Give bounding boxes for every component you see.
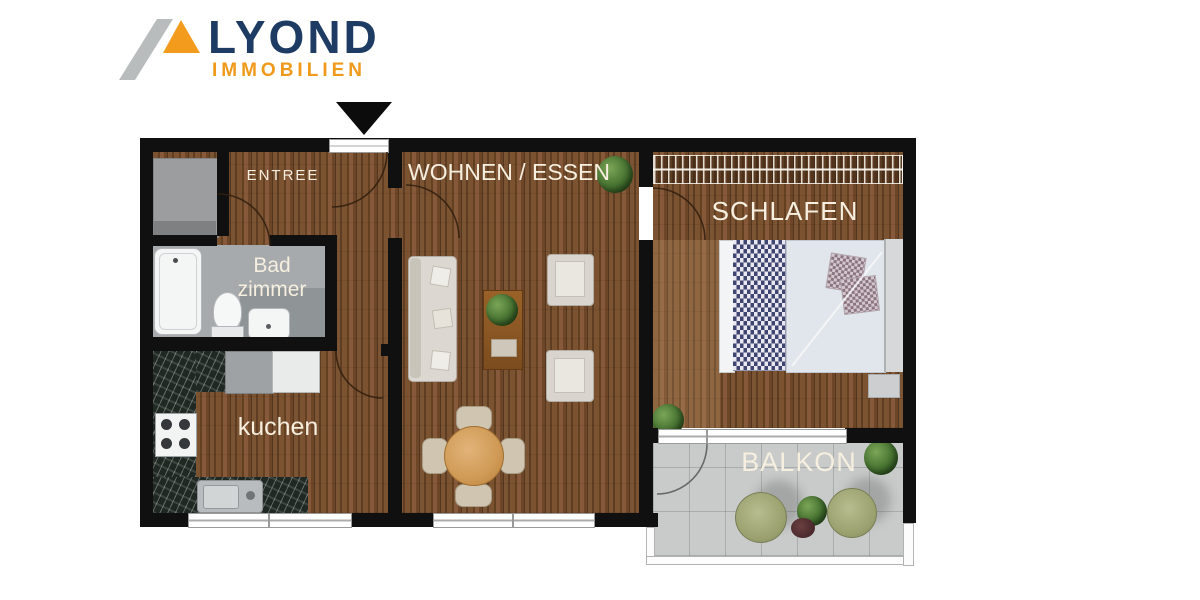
kitchen-appliance-gray xyxy=(225,351,274,394)
wall-bath-right xyxy=(325,235,337,351)
balcony-railing-bottom xyxy=(646,556,912,565)
bedroom-light-rug xyxy=(653,240,720,428)
room-label-entree: ENTREE xyxy=(247,167,320,184)
brand-name: LYOND xyxy=(208,10,380,64)
dining-table xyxy=(444,426,504,486)
balcony-railing-left xyxy=(646,527,655,559)
balcony-center-plant-pot xyxy=(791,518,815,538)
bathtub-inner xyxy=(159,253,197,330)
wall-wardrobe-stub xyxy=(217,152,229,236)
armchair-bottom xyxy=(546,350,594,402)
bedroom-balcony-door-window xyxy=(658,429,847,444)
wall-kitchen-jamb xyxy=(381,344,388,356)
room-label-living: WOHNEN / ESSEN xyxy=(408,159,610,186)
sink-basin xyxy=(203,485,239,509)
entrance-arrow-icon xyxy=(336,102,392,135)
kitchen-sink xyxy=(197,480,263,513)
wall-living-bedroom xyxy=(639,240,653,527)
bed-pillow xyxy=(840,275,880,315)
stove xyxy=(155,413,197,457)
floorplan-page: LYOND IMMOBILIEN xyxy=(0,0,1200,600)
wall-corridor-living xyxy=(388,238,402,513)
burner-icon xyxy=(179,419,190,430)
room-label-bedroom: SCHLAFEN xyxy=(712,196,859,227)
armchair-cushion xyxy=(554,358,585,393)
bathtub xyxy=(154,248,202,335)
dining-chair-bottom xyxy=(455,484,492,507)
balcony-chair-right xyxy=(827,488,877,538)
room-label-balcony: BALKON xyxy=(741,447,857,478)
wall-living-bedroom-stub xyxy=(639,152,653,187)
sofa-pillow xyxy=(432,308,453,329)
living-window-mullion xyxy=(512,513,514,527)
kitchen-appliance-white xyxy=(272,351,320,393)
armchair-top xyxy=(547,254,594,306)
kitchen-window xyxy=(188,513,352,528)
sofa-pillow xyxy=(429,265,451,287)
wall-right xyxy=(903,138,916,523)
logo-roof-icon xyxy=(114,14,206,84)
bed-headboard xyxy=(884,239,904,372)
entrance-door-slab xyxy=(329,139,389,153)
wall-top xyxy=(140,138,916,152)
bedroom-wardrobe-hatch xyxy=(653,155,903,184)
bed xyxy=(719,239,903,372)
sofa xyxy=(408,256,457,382)
bed-runner xyxy=(733,240,786,371)
wall-left xyxy=(140,138,153,527)
wall-corridor-living-stub xyxy=(388,152,402,188)
burner-icon xyxy=(179,438,190,449)
bedroom-bench xyxy=(868,374,900,398)
balcony-corner-plant xyxy=(864,440,898,475)
sofa-pillow xyxy=(430,350,451,371)
entree-wardrobe xyxy=(153,158,219,238)
sink-drain-icon xyxy=(266,324,271,329)
armchair-cushion xyxy=(555,261,585,297)
living-window xyxy=(433,513,595,528)
brand-tagline: IMMOBILIEN xyxy=(212,60,366,82)
balcony-door-mullion xyxy=(706,429,708,443)
wall-bath-top-left xyxy=(153,235,217,246)
burner-icon xyxy=(161,438,172,449)
kitchen-window-mullion xyxy=(268,513,270,527)
room-label-bathroom-line2: zimmer xyxy=(238,278,307,302)
brand-logo: LYOND IMMOBILIEN xyxy=(0,0,420,95)
wall-bath-bottom xyxy=(140,337,337,351)
faucet-icon xyxy=(246,491,255,500)
room-label-kitchen: kuchen xyxy=(238,413,319,442)
sofa-backrest xyxy=(410,258,421,378)
coffee-table-plant xyxy=(486,294,518,326)
drain-icon xyxy=(173,258,178,263)
burner-icon xyxy=(161,419,172,430)
wall-balcony-right xyxy=(845,428,903,443)
room-label-bathroom-line1: Bad xyxy=(253,254,290,278)
kitchen-counter-top xyxy=(196,351,225,392)
wardrobe-shelf xyxy=(154,221,216,235)
balcony-chair-left xyxy=(735,492,787,543)
book-stack xyxy=(491,339,517,357)
balcony-railing-right xyxy=(903,523,914,566)
wall-balcony-left xyxy=(639,428,658,443)
bathroom-sink xyxy=(248,308,290,340)
